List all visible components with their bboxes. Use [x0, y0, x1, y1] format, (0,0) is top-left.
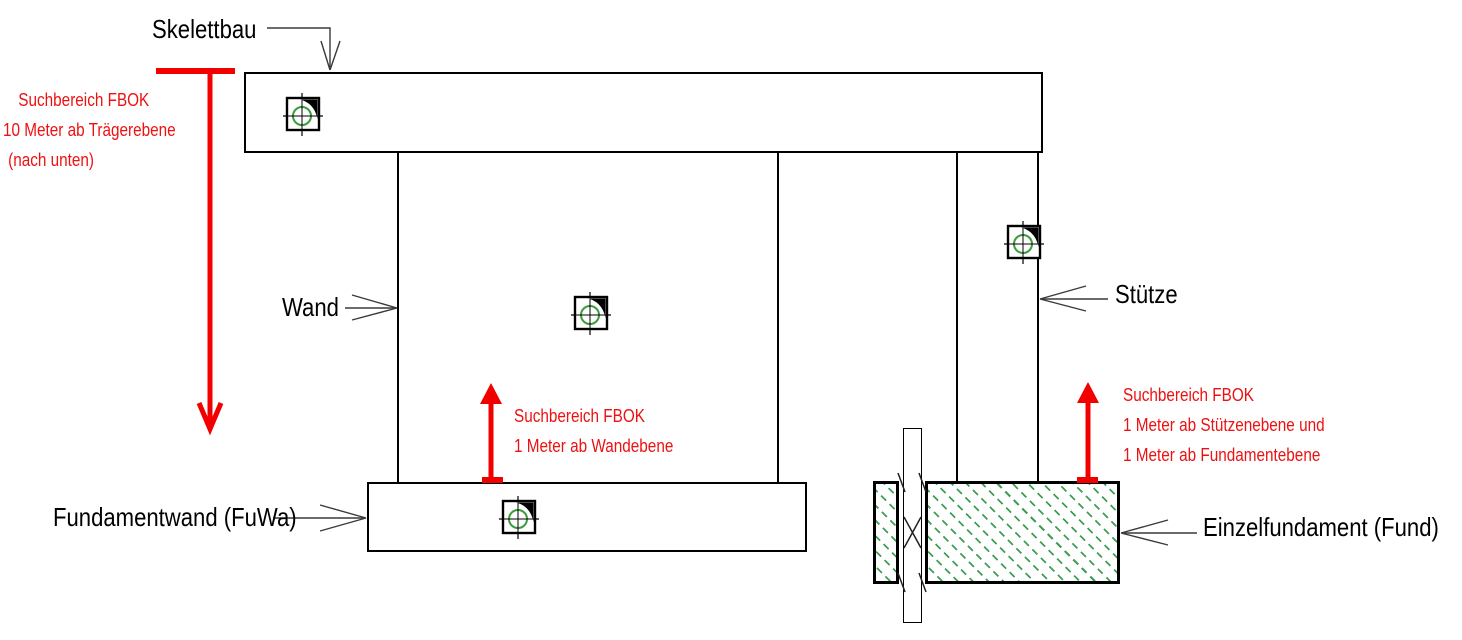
skelettbau-leader	[267, 28, 340, 70]
einzelfundament-rect	[925, 481, 1120, 584]
note-line: Suchbereich FBOK	[1123, 380, 1325, 410]
pile-rect	[903, 428, 922, 623]
stuetze-left-line	[956, 153, 958, 481]
suchbereich-fund-note: Suchbereich FBOK 1 Meter ab Stützenebene…	[1123, 380, 1325, 470]
wand-right-line	[777, 153, 779, 482]
note-line: 10 Meter ab Trägerebene	[3, 115, 176, 145]
wand-leader	[345, 295, 397, 320]
suchbereich-wand-arrow	[480, 383, 503, 480]
stuetze-leader	[1040, 286, 1108, 311]
fundamentwand-rect	[367, 482, 807, 552]
suchbereich-traeger-note: Suchbereich FBOK 10 Meter ab Trägerebene…	[3, 85, 176, 175]
stuetze-right-line	[1037, 153, 1039, 481]
fundamentwand-label: Fundamentwand (FuWa)	[53, 503, 297, 531]
drawing-canvas: Skelettbau Wand Fundamentwand (FuWa) Stü…	[0, 0, 1462, 640]
skelettbau-label: Skelettbau	[152, 15, 256, 43]
skelettbau-beam	[244, 72, 1043, 153]
wand-label: Wand	[282, 293, 339, 321]
suchbereich-fund-arrow	[1077, 382, 1099, 480]
note-line: 1 Meter ab Stützenebene und	[1123, 410, 1325, 440]
note-line: 1 Meter ab Wandebene	[514, 431, 673, 461]
note-line: 1 Meter ab Fundamentebene	[1123, 440, 1325, 470]
note-line: (nach unten)	[8, 145, 176, 175]
note-line: Suchbereich FBOK	[514, 401, 673, 431]
insertion-marker-wand	[571, 292, 611, 335]
suchbereich-wand-note: Suchbereich FBOK 1 Meter ab Wandebene	[514, 401, 673, 461]
einzelfundament-left-part	[873, 481, 899, 584]
wand-left-line	[397, 153, 399, 482]
stuetze-label: Stütze	[1115, 280, 1178, 308]
einzelfundament-leader	[1121, 520, 1197, 545]
note-line: Suchbereich FBOK	[18, 85, 175, 115]
einzelfundament-label: Einzelfundament (Fund)	[1203, 513, 1439, 541]
